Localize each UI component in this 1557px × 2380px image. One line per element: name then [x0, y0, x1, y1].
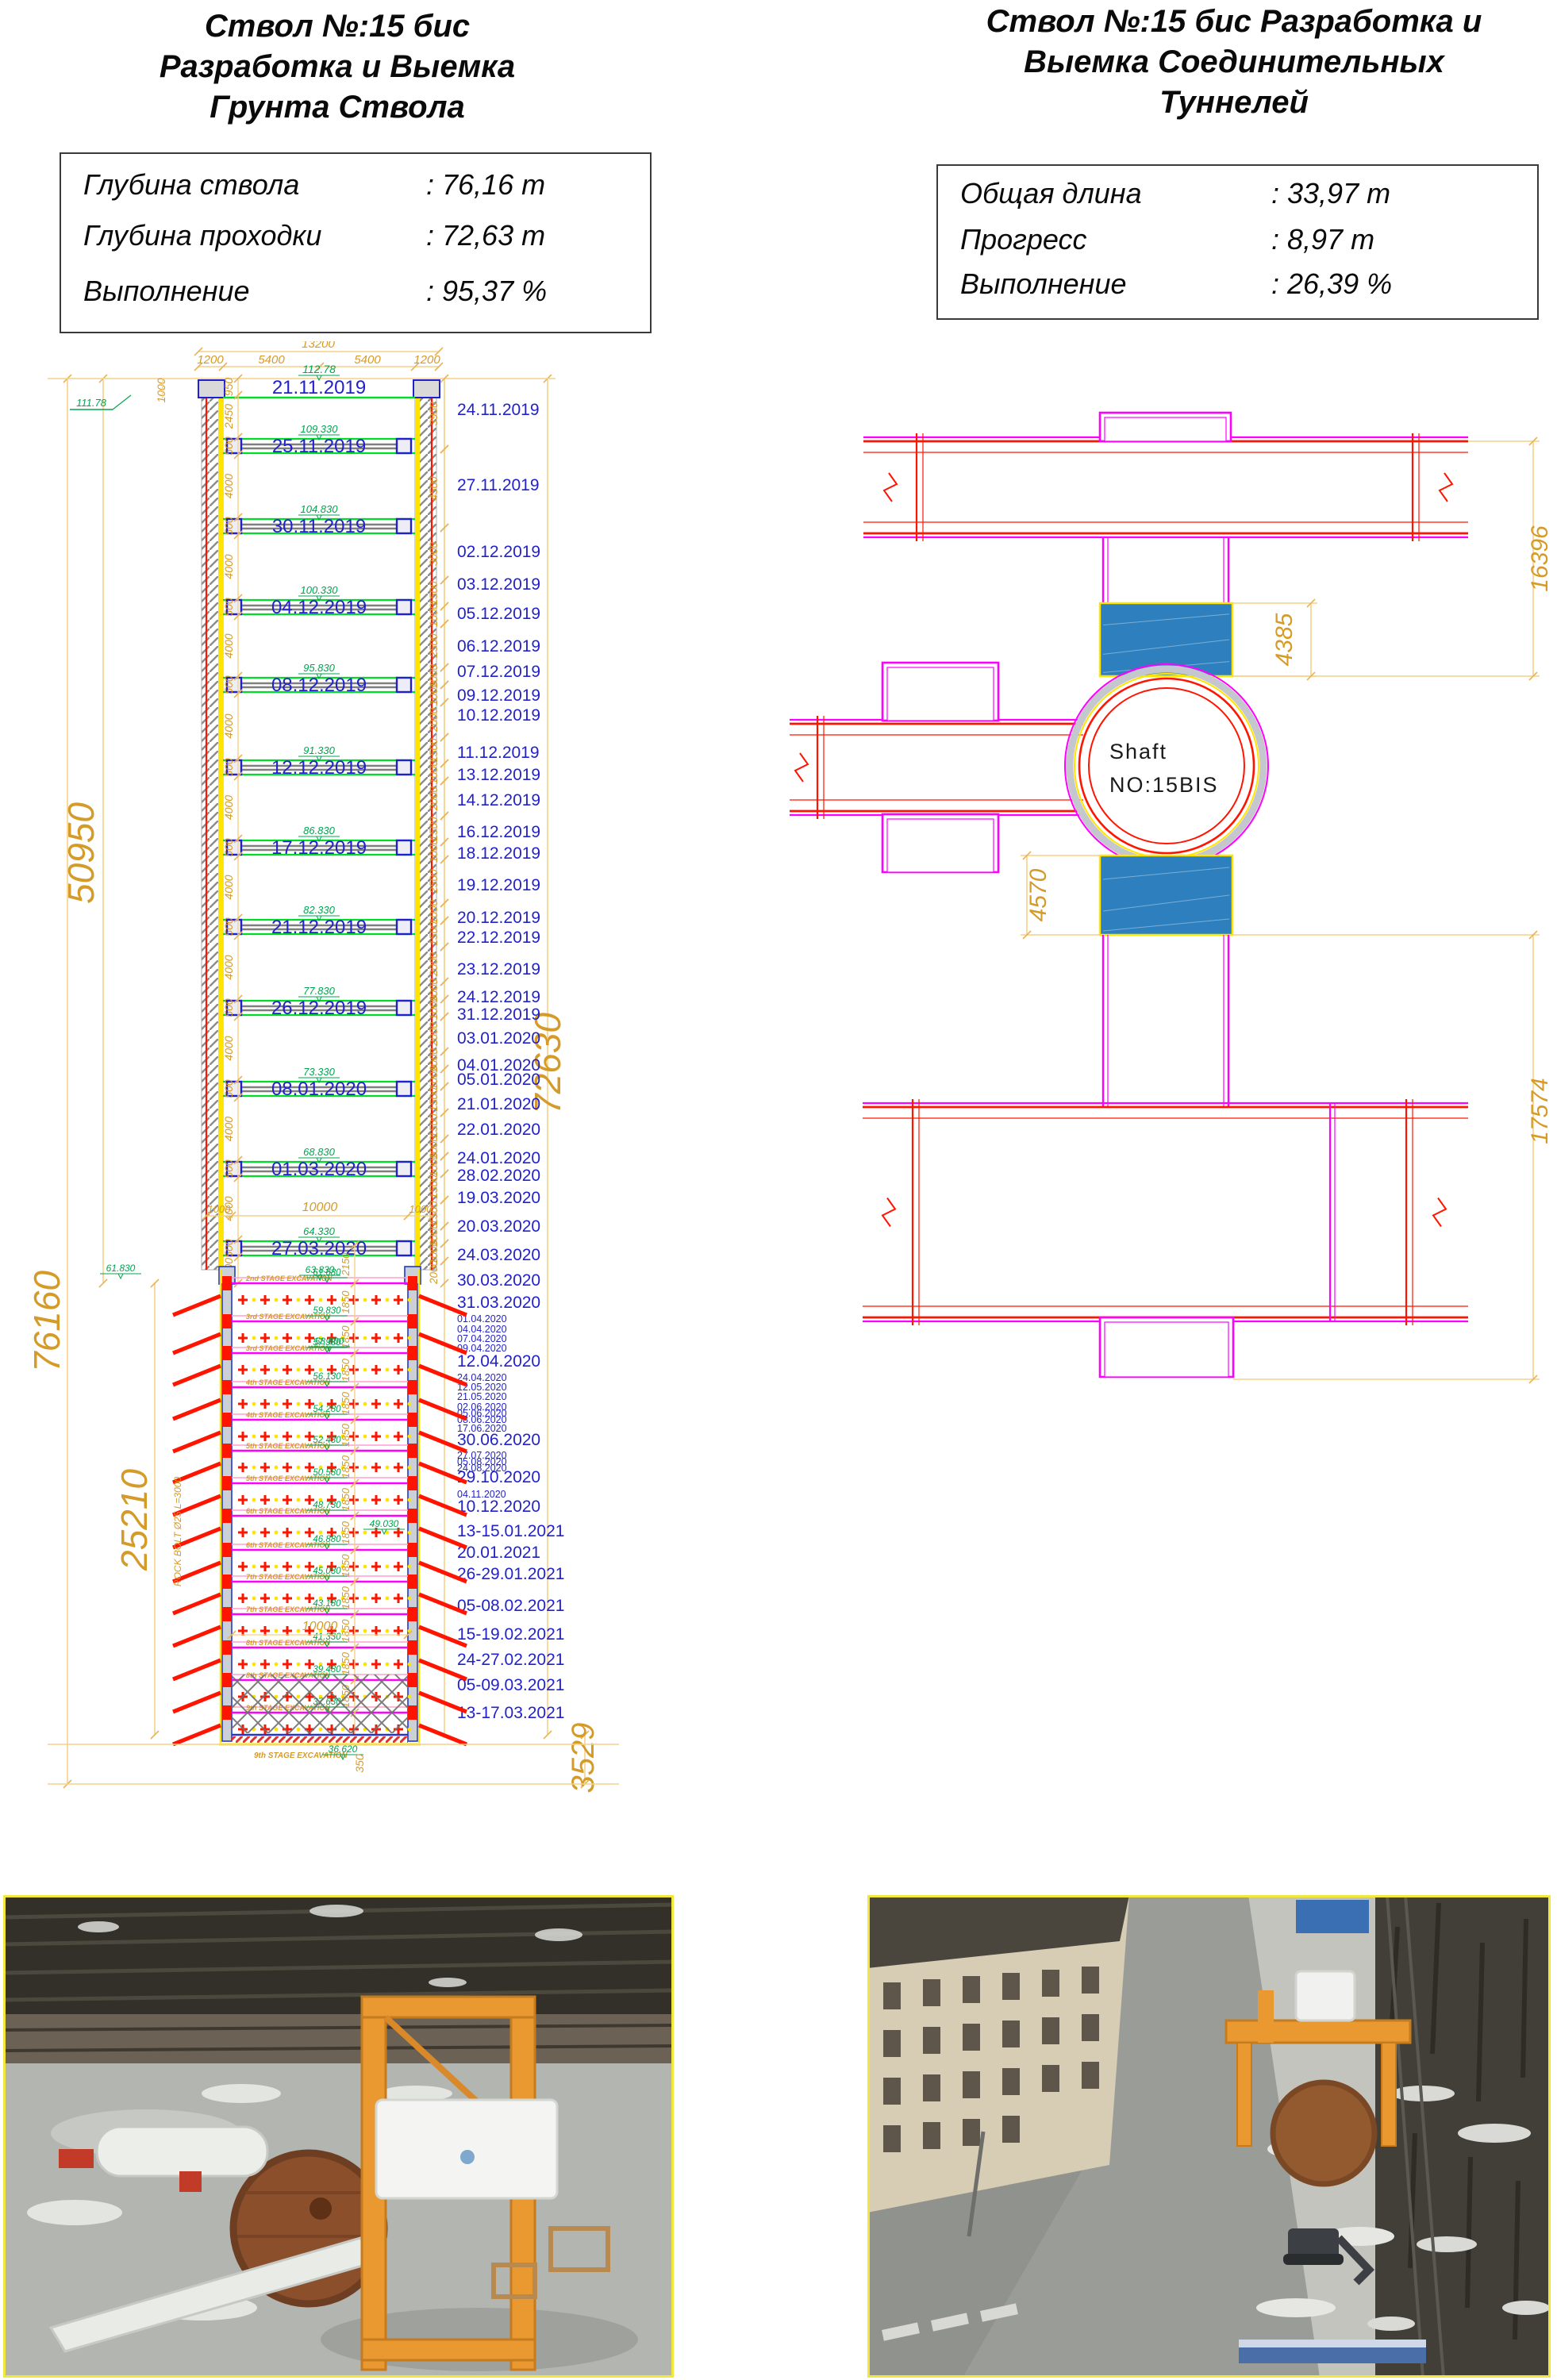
extra-elevation: 49.030 [370, 1518, 399, 1529]
shaft-label: Shaft [1109, 740, 1167, 763]
total-shaft-depth-dim: 76160 [32, 1271, 67, 1372]
wall-yellow-strip [415, 397, 420, 1270]
bolt-dot [363, 1402, 367, 1406]
timeline-date: 24.03.2020 [457, 1246, 540, 1264]
rock-anchor-left [173, 1725, 221, 1744]
cap-block-left [198, 380, 225, 398]
lining-red-block [222, 1314, 232, 1328]
lining-red-block [222, 1380, 232, 1394]
bottom-tunnel-bump-inner [1105, 1322, 1228, 1377]
bolt-dot [275, 1298, 279, 1302]
bolt-dot [297, 1435, 301, 1439]
timeline-date: 19.12.2019 [457, 876, 540, 894]
bolt-dot [275, 1629, 279, 1633]
strut-end-box [397, 840, 411, 855]
bolt-dot [297, 1565, 301, 1569]
bolt-dot [319, 1298, 323, 1302]
lining-red-block [222, 1640, 232, 1655]
right-chain-dim: 2500 [428, 869, 440, 894]
lining-red-block [222, 1444, 232, 1458]
bolt-dot [408, 1498, 412, 1502]
bolt-dot [363, 1565, 367, 1569]
bolt-dot [297, 1368, 301, 1372]
bolt-dot [275, 1368, 279, 1372]
stat-completion-right: Выполнение : 26,39 % [938, 267, 1537, 311]
bolt-dot [252, 1368, 256, 1372]
inner-chain-dim: 1850 [340, 1290, 352, 1314]
strut-date: 25.11.2019 [272, 436, 366, 457]
bolt-dot [408, 1466, 412, 1470]
right-chain-dim: 2500 [428, 633, 440, 659]
right-chain-dim: 1000 [428, 995, 440, 1020]
stage-elevation: 43.180 [313, 1599, 341, 1609]
rock-anchor-left [173, 1400, 221, 1419]
bolt-dot [363, 1466, 367, 1470]
bolt-dot [297, 1402, 301, 1406]
stat-value: : 76,16 m [426, 168, 545, 202]
timeline-date: 07.12.2019 [457, 663, 540, 681]
site-fence [1239, 2340, 1426, 2363]
bolt-dot [252, 1298, 256, 1302]
timeline-date: 31.12.2019 [457, 1005, 540, 1024]
lining-red-block [408, 1607, 417, 1621]
timeline-date: 13.12.2019 [457, 766, 540, 784]
left-chain-dim: 500 [222, 598, 235, 617]
inner-chain-dim: 1850 [340, 1586, 352, 1609]
crane-cabin [1296, 1971, 1355, 2021]
stage-elevation: 46.880 [313, 1535, 341, 1544]
top-seg-dim: 5400 [354, 353, 381, 367]
right-chain-dim: 1500 [428, 1113, 440, 1138]
lining-red-block [408, 1413, 417, 1427]
left-chain-dim: 500 [222, 838, 235, 857]
bolt-dot [275, 1663, 279, 1667]
stat-completion-left: Выполнение : 95,37 % [61, 275, 650, 321]
bolt-dot [408, 1695, 412, 1699]
site-photo-shaft [3, 1895, 674, 2378]
timeline-date: 13-15.01.2021 [457, 1522, 564, 1540]
strut-end-box [397, 519, 411, 533]
lining-wall [408, 1270, 417, 1741]
bolt-dot [386, 1565, 390, 1569]
surface-elevation: 112.78 [302, 363, 336, 375]
strut-elevation: 109.330 [301, 423, 339, 435]
strut-elevation: 91.330 [303, 744, 336, 756]
inner-chain-dim: 1850 [340, 1554, 352, 1578]
left-tunnel-bump-bottom-inner [887, 819, 994, 872]
stat-value: : 95,37 % [426, 275, 547, 308]
timeline-date: 20.03.2020 [457, 1217, 540, 1236]
bolt-dot [252, 1402, 256, 1406]
dim-17574: 17574 [1527, 1078, 1553, 1144]
rock-anchor-left [173, 1432, 221, 1451]
right-chain-dim: 2000 [428, 786, 440, 811]
right-chain-dim: 2000 [428, 1021, 440, 1047]
timeline-date: 27.11.2019 [457, 476, 540, 494]
lining-red-block [408, 1314, 417, 1328]
bolt-dot [408, 1565, 412, 1569]
lining-red-block [408, 1705, 417, 1720]
lining-red-block [222, 1509, 232, 1523]
inner-chain-dim: 1850 [340, 1487, 352, 1511]
lining-red-block [408, 1444, 417, 1458]
bolt-dot [363, 1498, 367, 1502]
left-title: Ствол №:15 бис Разработка и Выемка Грунт… [60, 6, 615, 129]
lining-red-block [408, 1543, 417, 1557]
lining-red-block [222, 1574, 232, 1589]
rock-anchor-left [173, 1334, 221, 1353]
shaft-cover [1273, 2082, 1374, 2184]
lining-red-block [222, 1673, 232, 1687]
bolt-dot [386, 1498, 390, 1502]
bolt-dot [252, 1531, 256, 1535]
bolt-dot [386, 1298, 390, 1302]
right-chain-dim: 1000 [428, 602, 440, 627]
bolt-dot [408, 1402, 412, 1406]
strut-end-box [397, 1001, 411, 1015]
bolt-dot [363, 1435, 367, 1439]
bolt-dot [275, 1466, 279, 1470]
timeline-date: 24.01.2020 [457, 1149, 540, 1167]
bolt-dot [297, 1531, 301, 1535]
left-chain-dim: 4000 [222, 474, 235, 498]
bolt-dot [363, 1629, 367, 1633]
elevation-leader [113, 395, 131, 409]
left-chain-dim: 950 [222, 378, 235, 397]
strut-elevation: 77.830 [303, 985, 336, 997]
top-tunnel-bump-inner [1105, 417, 1226, 441]
surface-offset-dim: 1000 [155, 378, 167, 402]
rock-anchor-left [173, 1627, 221, 1646]
break-mark [884, 473, 897, 502]
upper-section-dim: 50950 [60, 802, 102, 904]
timeline-date: 05.01.2020 [457, 1071, 540, 1089]
bolt-dot [275, 1336, 279, 1340]
inner-chain-dim: 1850 [340, 1391, 352, 1415]
lower-section-dim: 25210 [113, 1469, 155, 1571]
left-chain-dim: 500 [222, 998, 235, 1017]
timeline-date: 12.04.2020 [457, 1352, 540, 1371]
bolt-dot [252, 1435, 256, 1439]
stat-excavation-depth: Глубина проходки : 72,63 m [61, 219, 650, 265]
bolt-dot [363, 1368, 367, 1372]
timeline-date: 09.12.2019 [457, 686, 540, 705]
bolt-dot [408, 1298, 412, 1302]
extra-elevation: 63.830 [306, 1264, 335, 1275]
right-chain-dim: 4500 [428, 476, 440, 501]
width-dim-lower: 10000 [302, 1620, 338, 1633]
lining-red-block [408, 1673, 417, 1687]
bolt-dot [252, 1336, 256, 1340]
left-chain-dim: 4000 [222, 1036, 235, 1060]
red-equipment [59, 2149, 94, 2168]
timeline-date: 22.01.2020 [457, 1121, 540, 1139]
strut-end-box [397, 920, 411, 934]
stage-elevation: 48.730 [313, 1501, 341, 1510]
inner-chain-dim: 1850 [340, 1358, 352, 1382]
bottom-tunnel [863, 1099, 1468, 1325]
left-chain-dim: 4000 [222, 633, 235, 658]
stat-value: : 8,97 m [1271, 223, 1374, 256]
strut-elevation: 64.330 [303, 1225, 336, 1237]
strut-end-box [397, 439, 411, 453]
site-container [1296, 1900, 1369, 1933]
stat-label: Прогресс [960, 223, 1087, 256]
left-chain-dim: 4000 [222, 875, 235, 899]
lower-chamber [1100, 855, 1232, 935]
bolt-dot [275, 1597, 279, 1601]
rock-anchor-right [419, 1725, 467, 1744]
lining-red-block [222, 1705, 232, 1720]
strut-elevation: 68.830 [303, 1146, 336, 1158]
top-seg-dim: 1200 [197, 353, 224, 367]
bolt-dot [363, 1597, 367, 1601]
inner-chain-dim: 1850 [340, 1455, 352, 1478]
left-chain-dim: 500 [222, 436, 235, 456]
bolt-dot [408, 1597, 412, 1601]
bolt-dot [408, 1663, 412, 1667]
bolt-dot [408, 1435, 412, 1439]
right-chain-dim: 2000 [428, 1259, 440, 1285]
timeline-date: 11.12.2019 [457, 744, 540, 762]
left-chain-dim: 500 [222, 517, 235, 536]
inner-chain-dim: 1850 [340, 1619, 352, 1643]
timeline-date: 13-17.03.2021 [457, 1704, 564, 1722]
timeline-date: 03.01.2020 [457, 1029, 540, 1048]
shaft-ring-red-inner [1089, 688, 1244, 844]
timeline-date: 29.10.2020 [457, 1468, 540, 1486]
left-chain-dim: 4000 [222, 554, 235, 579]
bolt-dot [386, 1402, 390, 1406]
inner-chain-dim: 1850 [340, 1651, 352, 1675]
stage-elevation: 45.030 [313, 1567, 341, 1576]
bolt-dot [275, 1531, 279, 1535]
left-tunnel [790, 716, 1083, 819]
bolt-dot [319, 1368, 323, 1372]
timeline-date: 16.12.2019 [457, 823, 540, 841]
lining-red-block [222, 1543, 232, 1557]
stat-label: Общая длина [960, 177, 1142, 210]
storage-tank [97, 2127, 267, 2176]
bolt-dot [252, 1629, 256, 1633]
timeline-date: 05.12.2019 [457, 605, 540, 623]
rock-anchor-right [419, 1693, 467, 1712]
strut-elevation: 95.830 [303, 662, 336, 674]
inner-chain-dim: 2150 [340, 1252, 352, 1277]
right-chain-dim: 1000 [428, 759, 440, 784]
strut-elevation: 73.330 [303, 1066, 336, 1078]
stat-label: Глубина проходки [83, 219, 321, 252]
bolt-dot [252, 1663, 256, 1667]
break-mark [1433, 1198, 1446, 1227]
strut-end-box [397, 600, 411, 614]
stat-label: Глубина ствола [83, 168, 299, 202]
strut-date: 04.12.2019 [271, 597, 367, 618]
lining-red-block [222, 1346, 232, 1360]
rock-anchor-left [173, 1296, 221, 1315]
timeline-date: 06.12.2019 [457, 637, 540, 656]
left-chain-dim: 500 [222, 675, 235, 694]
bolt-dot [297, 1663, 301, 1667]
right-chain-dim: 1000 [428, 1152, 440, 1177]
upper-adit [1103, 536, 1228, 603]
inner-chain-dim: 1850 [340, 1423, 352, 1447]
strut-elevation: 82.330 [303, 904, 336, 916]
right-title-line2: Выемка Соединительных [913, 42, 1555, 83]
bolt-dot [297, 1466, 301, 1470]
strut-date: 21.11.2019 [272, 377, 366, 398]
lining-red-block [408, 1574, 417, 1589]
timeline-date: 05-09.03.2021 [457, 1676, 564, 1694]
timeline-date: 10.12.2019 [457, 706, 540, 725]
left-chain-dim: 4000 [222, 713, 235, 738]
bottom-small-dim: 350 [353, 1754, 366, 1773]
dim-4570: 4570 [1025, 868, 1051, 921]
right-chain-dim: 1500 [428, 921, 440, 946]
tunnel-plan-diagram: ShaftNO:15BIS163964385457017574 [778, 397, 1557, 1428]
top-seg-dim: 1200 [413, 353, 440, 367]
strut-end-box [397, 1082, 411, 1096]
strut-date: 01.03.2020 [271, 1159, 367, 1180]
timeline-date: 18.12.2019 [457, 844, 540, 863]
left-chain-dim: 4000 [222, 955, 235, 979]
right-chain-dim: 1500 [428, 738, 440, 763]
top-seg-dim: 5400 [258, 353, 285, 367]
stat-label: Выполнение [83, 275, 250, 308]
right-title-line3: Туннелей [913, 83, 1555, 123]
bolt-dot [408, 1368, 412, 1372]
strut-date: 21.12.2019 [271, 917, 367, 938]
extra-elevation: 61.830 [106, 1263, 136, 1274]
bolt-dot [275, 1402, 279, 1406]
timeline-date: 30.03.2020 [457, 1271, 540, 1290]
timeline-date: 05-08.02.2021 [457, 1597, 564, 1615]
bolt-dot [275, 1435, 279, 1439]
bolt-dot [408, 1336, 412, 1340]
strut-date: 17.12.2019 [271, 837, 367, 859]
rock-crosshatch [232, 1674, 408, 1733]
timeline-date: 23.12.2019 [457, 960, 540, 979]
left-chain-dim: 500 [222, 1079, 235, 1098]
dim-4385: 4385 [1271, 613, 1297, 666]
right-chain-dim: 3000 [428, 541, 440, 566]
timeline-date: 20.01.2021 [457, 1544, 540, 1562]
shaft-section-diagram: 7616050950252107263035291320012005400540… [32, 341, 651, 1833]
timeline-date: 28.02.2020 [457, 1167, 540, 1185]
bolt-dot [275, 1565, 279, 1569]
inner-chain-dim: 1850 [340, 1521, 352, 1544]
right-title: Ствол №:15 бис Разработка и Выемка Соеди… [913, 2, 1555, 124]
bolt-dot [386, 1663, 390, 1667]
left-chain-dim: 500 [222, 1159, 235, 1178]
right-chain-dim: 1500 [428, 1087, 440, 1112]
timeline-date: 15-19.02.2021 [457, 1625, 564, 1644]
rock-anchor-left [173, 1693, 221, 1712]
stat-progress: Прогресс : 8,97 m [938, 223, 1537, 267]
left-chain-dim: 4000 [222, 1117, 235, 1141]
lining-red-block [408, 1346, 417, 1360]
site-photo-street [867, 1895, 1551, 2378]
bolt-dot [252, 1565, 256, 1569]
break-mark [1440, 473, 1452, 502]
bolt-dot [297, 1597, 301, 1601]
stat-value: : 33,97 m [1271, 177, 1390, 210]
right-chain-dim: 1000 [428, 838, 440, 863]
left-chain-dim: 500 [222, 917, 235, 936]
lining-red-block [408, 1380, 417, 1394]
timeline-date: 24.12.2019 [457, 988, 540, 1006]
bottom-elevation: 36.620 [329, 1744, 358, 1755]
timeline-date: 24.11.2019 [457, 401, 540, 419]
strut-date: 08.12.2019 [271, 675, 367, 696]
timeline-date: 26-29.01.2021 [457, 1565, 564, 1583]
lining-red-block [222, 1413, 232, 1427]
timeline-date: 02.12.2019 [457, 543, 540, 561]
right-chain-dim: 2000 [428, 707, 440, 732]
bolt-dot [297, 1298, 301, 1302]
break-mark [795, 753, 808, 782]
wall-dim-right: 1000 [409, 1203, 433, 1215]
rock-anchor-left [173, 1366, 221, 1385]
bolt-dot [363, 1298, 367, 1302]
rock-anchor-left [173, 1594, 221, 1613]
bolt-dot [297, 1498, 301, 1502]
bottom-gap-dim: 3529 [566, 1723, 601, 1794]
strut-elevation: 100.330 [301, 584, 339, 596]
left-chain-dim: 4000 [222, 795, 235, 820]
right-chain-dim: 1500 [428, 581, 440, 606]
stage-elevation: 41.330 [313, 1632, 341, 1642]
stat-shaft-depth: Глубина ствола : 76,16 m [61, 168, 650, 214]
lining-red-block [408, 1640, 417, 1655]
stat-label: Выполнение [960, 267, 1127, 301]
lining-red-block [408, 1276, 417, 1290]
bolt-dot [319, 1531, 323, 1535]
timeline-date: 21.01.2020 [457, 1095, 540, 1113]
lining-red-block [408, 1476, 417, 1490]
bolt-dot [252, 1597, 256, 1601]
bolt-dot [386, 1435, 390, 1439]
strut-date: 30.11.2019 [272, 516, 366, 537]
right-chain-dim: 1500 [428, 817, 440, 841]
strut-date: 12.12.2019 [271, 757, 367, 779]
strut-end-box [397, 760, 411, 775]
hoist-housing [376, 2100, 557, 2198]
timeline-date: 22.12.2019 [457, 929, 540, 947]
bolt-dot [363, 1531, 367, 1535]
timeline-date: 24-27.02.2021 [457, 1651, 564, 1669]
stage-elevation: 59.830 [313, 1306, 341, 1316]
bolt-dot [386, 1629, 390, 1633]
progress-report-page: { "left_panel": { "title_lines": ["Ствол… [0, 0, 1557, 2380]
lining-red-block [222, 1607, 232, 1621]
left-title-line2: Разработка и Выемка [60, 47, 615, 87]
right-chain-dim: 1000 [428, 1065, 440, 1090]
timeline-date: 31.03.2020 [457, 1294, 540, 1312]
strut-end-box [397, 1162, 411, 1176]
stat-value: : 26,39 % [1271, 267, 1392, 301]
strut-end-box [397, 1241, 411, 1255]
dim-16396: 16396 [1527, 525, 1553, 592]
strut-date: 27.03.2020 [271, 1238, 367, 1259]
bolt-dot [275, 1498, 279, 1502]
extra-elevation: 58.600 [315, 1336, 344, 1347]
timeline-date: 20.12.2019 [457, 909, 540, 927]
cap-block-right [413, 380, 440, 398]
shaft-label: NO:15BIS [1109, 773, 1219, 797]
top-tunnel [863, 433, 1468, 541]
bolt-dot [363, 1663, 367, 1667]
